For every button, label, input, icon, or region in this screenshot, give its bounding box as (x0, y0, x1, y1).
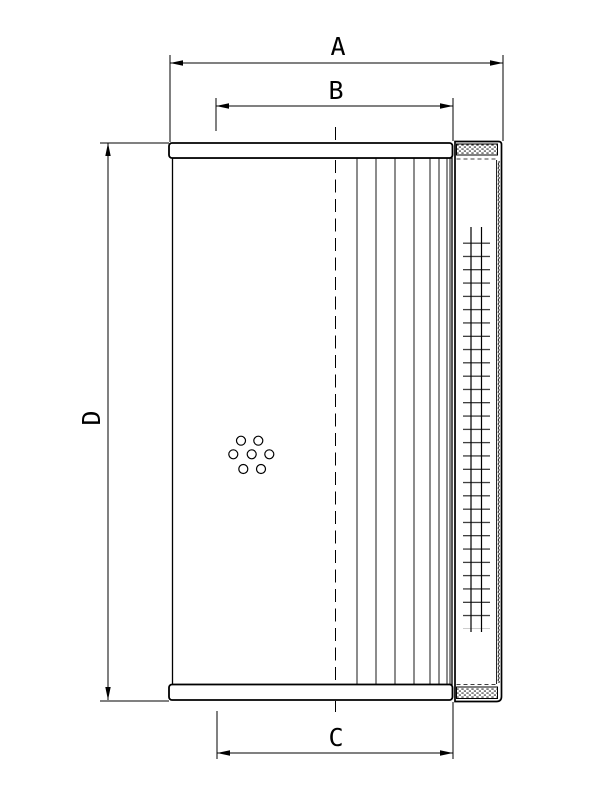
arrowhead-icon (105, 143, 110, 156)
arrowhead-icon (217, 750, 230, 755)
dimension-a-label: A (330, 32, 345, 61)
arrowhead-icon (440, 750, 453, 755)
arrowhead-icon (105, 687, 110, 700)
arrowhead-icon (440, 103, 453, 108)
dimension-b-label: B (328, 76, 343, 105)
arrowhead-icon (216, 103, 229, 108)
drawing-page: A B D C (0, 0, 612, 792)
bottom-end-cap (169, 685, 453, 701)
end-cap-adhesive-top (457, 144, 498, 155)
filter-element-technical-drawing: A B D C (0, 0, 612, 792)
dimension-d: D (77, 143, 169, 701)
arrowhead-icon (490, 60, 503, 65)
end-cap-adhesive-bottom (457, 687, 498, 699)
seam-texture (497, 161, 501, 683)
element-side-view (169, 127, 453, 712)
arrowhead-icon (170, 60, 183, 65)
top-end-cap (169, 143, 453, 158)
dimension-c-label: C (328, 723, 343, 752)
element-body (173, 158, 453, 685)
mesh-rungs (463, 237, 490, 629)
element-section-view (455, 142, 502, 702)
dimension-d-label: D (77, 410, 106, 425)
dimension-b: B (216, 76, 453, 141)
